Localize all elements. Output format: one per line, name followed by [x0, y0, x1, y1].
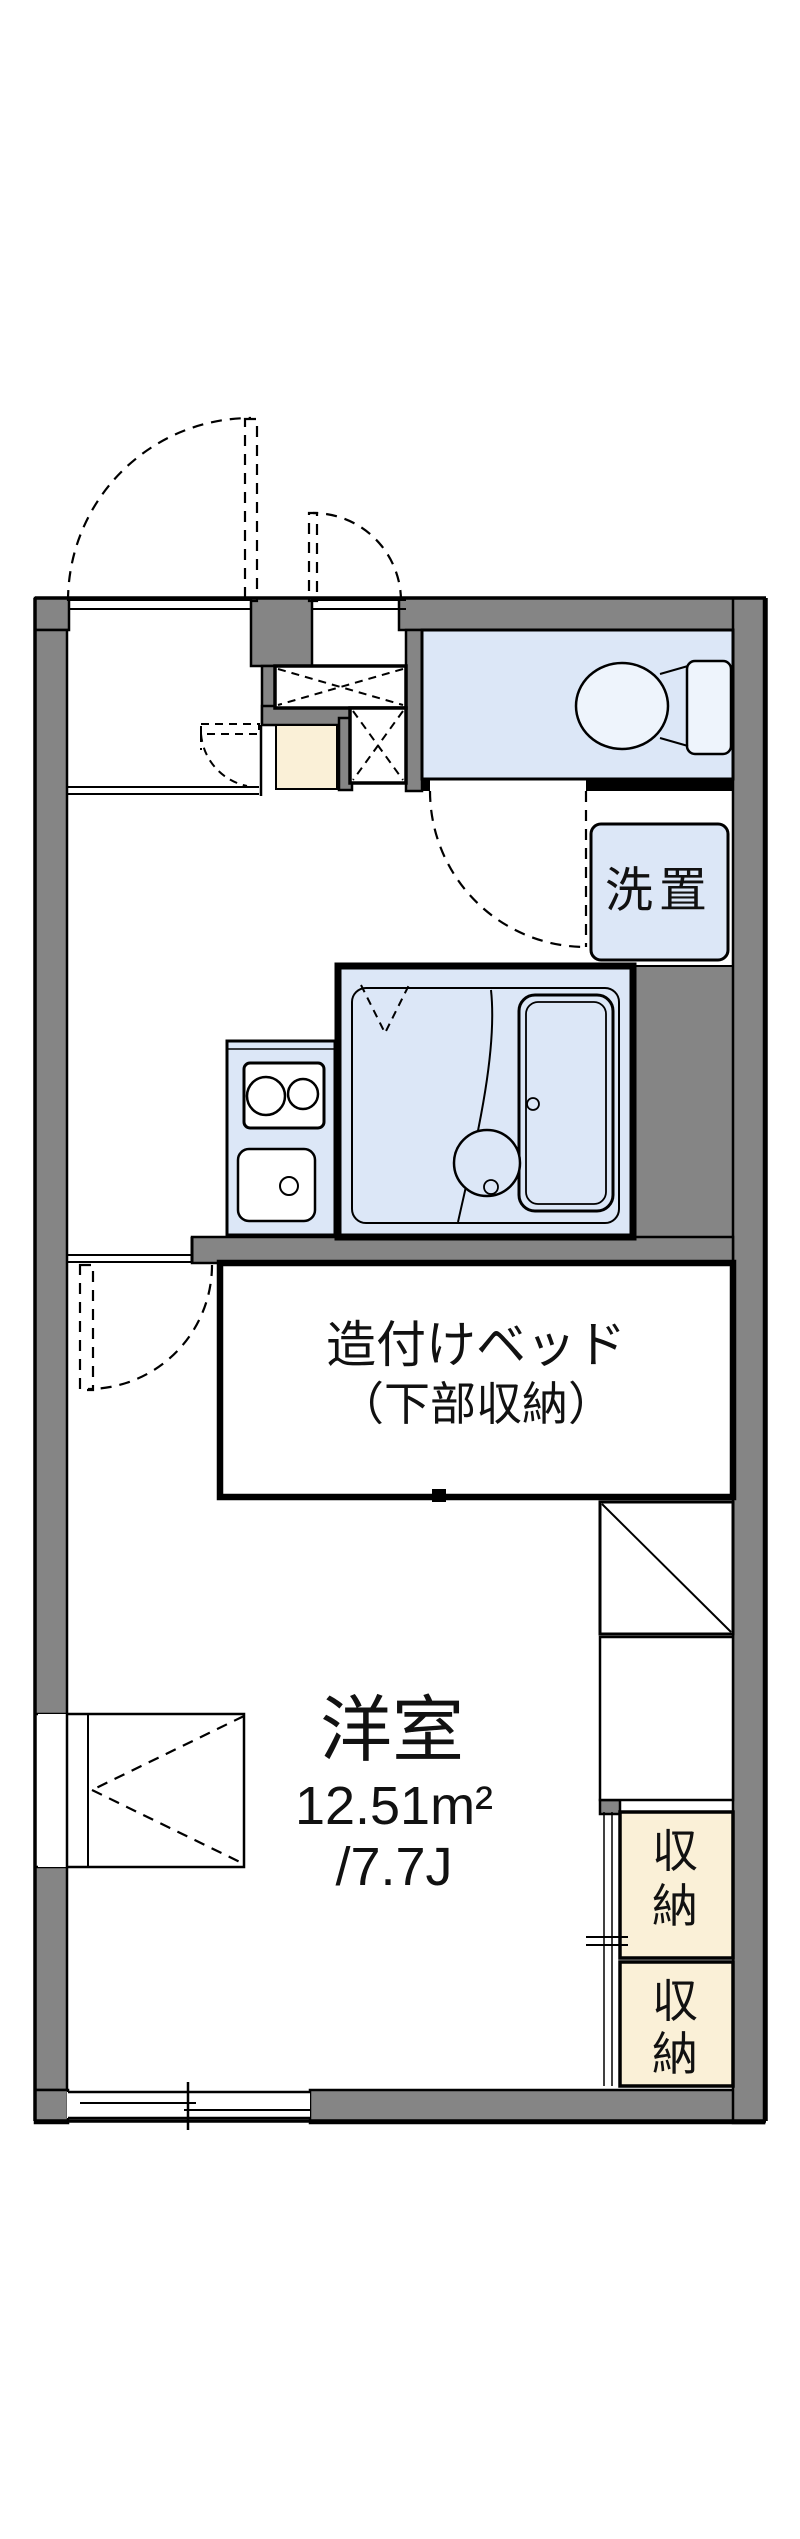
- wall-entry-pier: [251, 598, 312, 666]
- bay-window-wall-gap: [38, 1714, 67, 1867]
- toilet-wall-right: [586, 779, 733, 791]
- wall-storage-step: [600, 1800, 620, 1814]
- toilet-wall-stub: [422, 779, 430, 791]
- storage-lower-char1: 収: [652, 1975, 698, 2027]
- stove-burner-left: [247, 1077, 285, 1115]
- storage-upper-char2: 納: [652, 1880, 698, 1932]
- entry-closet-upper: [275, 666, 406, 708]
- toilet-tank: [687, 661, 731, 754]
- toilet-bowl: [576, 663, 668, 749]
- wash-basin-drain: [484, 1180, 498, 1194]
- wall-right: [733, 598, 764, 2123]
- wall-left-upper: [35, 630, 67, 1714]
- storage-lower-char2: 納: [652, 2028, 698, 2080]
- stove-burner-right: [288, 1079, 318, 1109]
- storage-upper-char1: 収: [652, 1825, 698, 1877]
- floor-plan-page: 洗置: [0, 0, 800, 2539]
- floor-plan: 洗置: [0, 0, 800, 2539]
- bed-label-line2: （下部収納）: [338, 1378, 614, 1430]
- wall-bottom: [310, 2090, 764, 2123]
- kitchen: [227, 1041, 335, 1235]
- side-compartment: [600, 1637, 733, 1800]
- wall-top-right: [399, 598, 764, 630]
- washer-space: 洗置: [591, 824, 728, 960]
- bath-side-wall-fill: [633, 966, 733, 1237]
- room-name: 洋室: [320, 1691, 464, 1771]
- wall-service-zone-bottom: [192, 1237, 733, 1263]
- bath-room: [338, 966, 633, 1237]
- wall-top-left-corner: [35, 598, 69, 630]
- bed-edge-tick: [432, 1489, 446, 1502]
- bathtub-drain: [527, 1098, 539, 1110]
- toilet-room: [422, 630, 733, 791]
- sink-faucet: [280, 1177, 298, 1195]
- genkan-floor: [276, 725, 337, 789]
- room-area-jo: /7.7J: [335, 1837, 452, 1897]
- wall-bottom-left-corner: [35, 2090, 68, 2123]
- bay-window: [38, 1714, 244, 1867]
- wall-left-lower: [35, 1867, 67, 2090]
- washer-label: 洗置: [605, 865, 713, 918]
- bed-label-line1: 造付けベッド: [326, 1317, 626, 1373]
- wall-vestibule-right: [406, 630, 422, 791]
- kitchen-sink: [238, 1149, 315, 1221]
- room-area-m2: 12.51m²: [295, 1776, 493, 1836]
